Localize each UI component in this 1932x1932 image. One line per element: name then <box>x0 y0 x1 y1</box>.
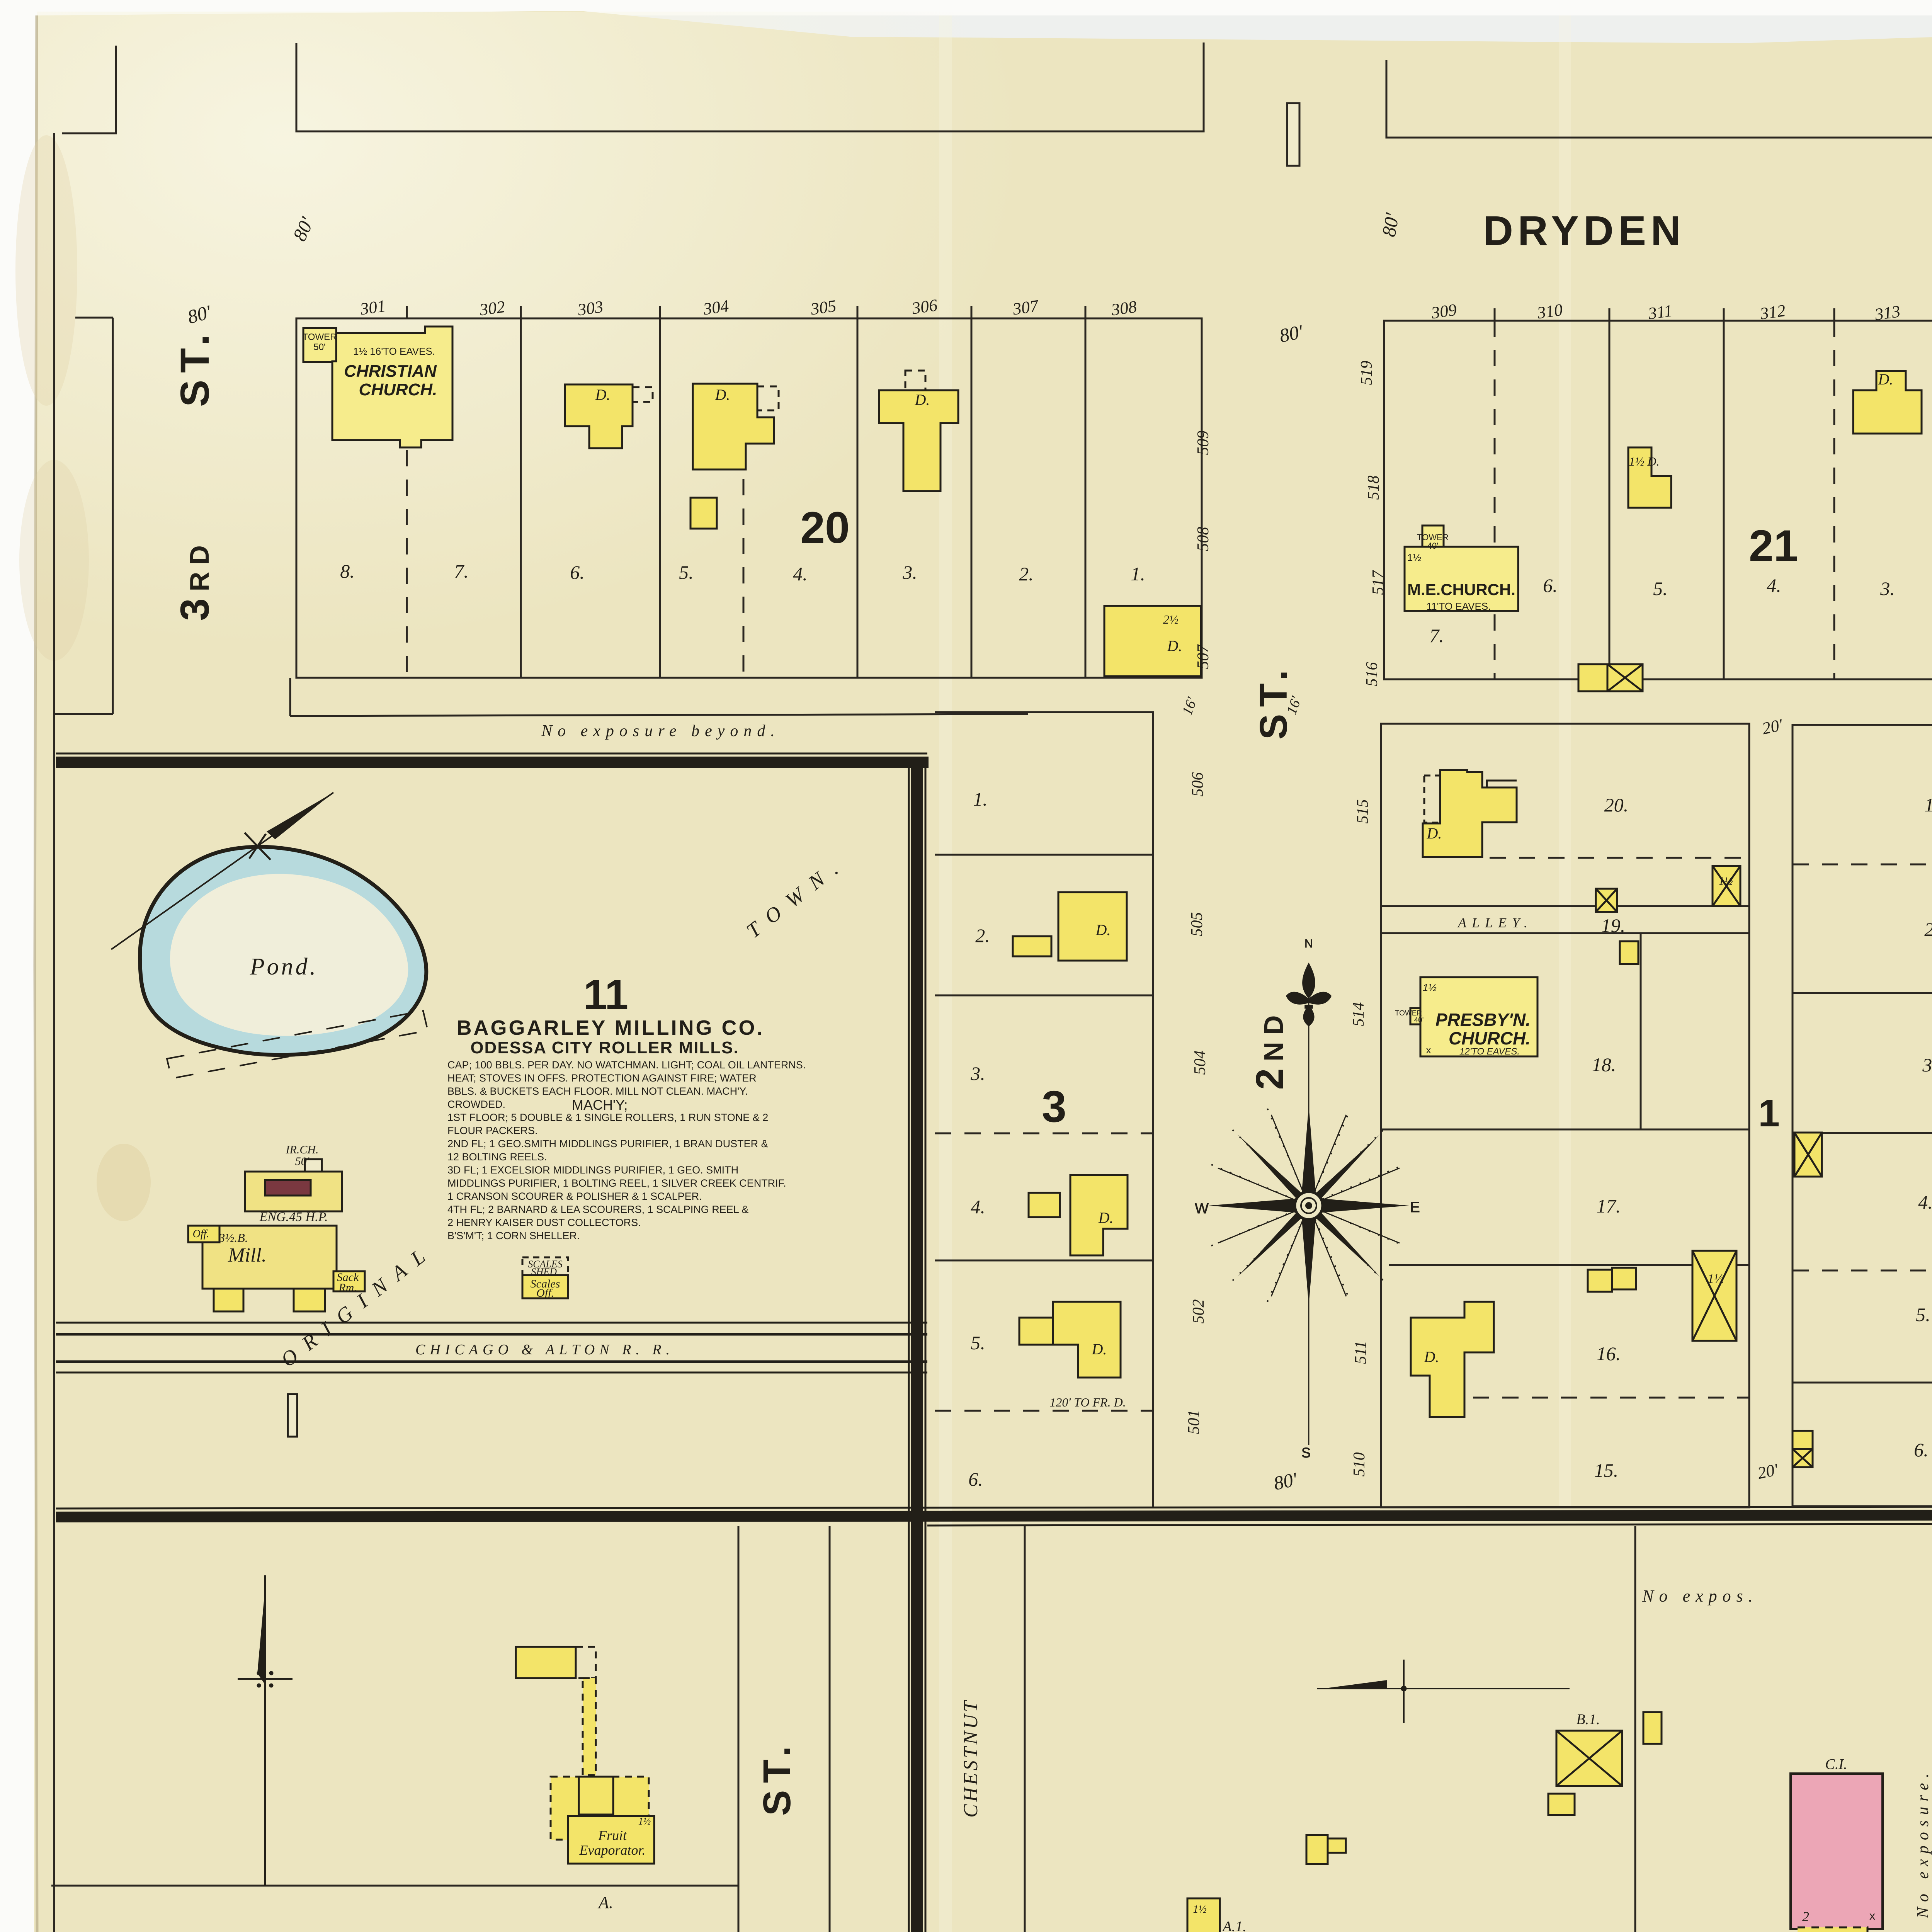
svg-text:2 HENRY KAISER DUST COLLECTORS: 2 HENRY KAISER DUST COLLECTORS. <box>447 1217 641 1228</box>
svg-text:CAP; 100 BBLS. PER DAY. NO WAT: CAP; 100 BBLS. PER DAY. NO WATCHMAN. LIG… <box>447 1059 806 1071</box>
svg-text:40': 40' <box>1427 541 1439 551</box>
svg-text:B.1.: B.1. <box>1576 1711 1600 1728</box>
svg-text:506: 506 <box>1189 772 1207 797</box>
svg-text:11'TO EAVES.: 11'TO EAVES. <box>1427 600 1491 612</box>
svg-text:ODESSA CITY ROLLER MILLS.: ODESSA CITY ROLLER MILLS. <box>470 1038 739 1057</box>
svg-text:CHICAGO & ALTON R. R.: CHICAGO & ALTON R. R. <box>415 1342 674 1358</box>
svg-text:12 BOLTING REELS.: 12 BOLTING REELS. <box>447 1151 547 1163</box>
svg-text:17.: 17. <box>1597 1195 1621 1217</box>
svg-text:312: 312 <box>1759 301 1787 323</box>
svg-text:2ND FL; 1 GEO.SMITH MIDDLINGS: 2ND FL; 1 GEO.SMITH MIDDLINGS PURIFIER, … <box>447 1138 768 1150</box>
svg-text:CHESTNUT: CHESTNUT <box>960 1699 982 1818</box>
svg-text:304: 304 <box>702 296 730 319</box>
svg-text:TOWER: TOWER <box>303 332 337 342</box>
svg-text:2½: 2½ <box>1163 612 1179 626</box>
svg-text:20: 20 <box>800 503 850 553</box>
svg-text:509: 509 <box>1194 431 1212 455</box>
svg-text:3D FL; 1 EXCELSIOR MIDDLINGS P: 3D FL; 1 EXCELSIOR MIDDLINGS PURIFIER, 1… <box>447 1164 738 1176</box>
svg-text:ST.: ST. <box>755 1739 799 1816</box>
svg-text:Off.: Off. <box>536 1287 554 1299</box>
svg-text:5.: 5. <box>971 1332 985 1354</box>
svg-text:D.: D. <box>1098 1209 1114 1226</box>
svg-text:2: 2 <box>1802 1909 1809 1924</box>
svg-text:FLOUR PACKERS.: FLOUR PACKERS. <box>447 1125 538 1136</box>
svg-text:1.: 1. <box>1924 794 1932 816</box>
svg-text:517: 517 <box>1369 570 1387 595</box>
svg-text:4.: 4. <box>793 563 808 585</box>
svg-text:310: 310 <box>1536 300 1564 323</box>
svg-text:1: 1 <box>1758 1092 1780 1135</box>
svg-text:M.E.CHURCH.: M.E.CHURCH. <box>1407 580 1515 599</box>
svg-text:E: E <box>1410 1199 1420 1216</box>
svg-text:IR.CH.: IR.CH. <box>286 1143 319 1156</box>
svg-text:x: x <box>1426 1044 1431 1056</box>
svg-text:501: 501 <box>1185 1410 1203 1434</box>
svg-text:302: 302 <box>478 297 506 320</box>
svg-text:W: W <box>1195 1201 1209 1217</box>
svg-text:3: 3 <box>1042 1082 1066 1131</box>
svg-text:120' TO FR. D.: 120' TO FR. D. <box>1049 1395 1126 1409</box>
svg-text:519: 519 <box>1358 361 1376 385</box>
svg-text:18.: 18. <box>1592 1054 1616 1075</box>
svg-text:11: 11 <box>583 971 628 1019</box>
svg-text:SHED.: SHED. <box>531 1266 560 1277</box>
svg-text:307: 307 <box>1011 296 1040 319</box>
svg-text:1½: 1½ <box>1718 875 1733 888</box>
svg-text:D.: D. <box>915 391 930 408</box>
svg-text:B'S'M'T; 1 CORN SHELLER.: B'S'M'T; 1 CORN SHELLER. <box>447 1230 580 1242</box>
svg-text:1½: 1½ <box>1708 1272 1724 1286</box>
svg-text:20.: 20. <box>1604 794 1629 816</box>
svg-text:1½: 1½ <box>1423 982 1437 993</box>
svg-text:4TH FL; 2 BARNARD & LEA SCOURE: 4TH FL; 2 BARNARD & LEA SCOURERS, 1 SCAL… <box>447 1204 748 1215</box>
svg-text:Pond.: Pond. <box>250 954 318 980</box>
svg-text:515: 515 <box>1354 799 1372 824</box>
svg-text:CHRISTIAN: CHRISTIAN <box>344 362 437 381</box>
svg-text:306: 306 <box>910 296 939 318</box>
svg-text:309: 309 <box>1430 300 1458 323</box>
svg-text:D.: D. <box>715 386 730 403</box>
svg-text:7.: 7. <box>454 560 469 582</box>
svg-text:A.1.: A.1. <box>1221 1918 1246 1932</box>
svg-text:No exposure.: No exposure. <box>1914 1768 1932 1918</box>
svg-text:C.I.: C.I. <box>1825 1756 1847 1772</box>
svg-text:311: 311 <box>1647 301 1674 323</box>
svg-text:D.: D. <box>1092 1340 1107 1358</box>
svg-text:507: 507 <box>1194 644 1212 669</box>
svg-text:303: 303 <box>576 297 604 320</box>
svg-text:505: 505 <box>1188 912 1206 937</box>
svg-text:5.: 5. <box>1653 578 1668 599</box>
svg-text:4.: 4. <box>1918 1191 1932 1213</box>
svg-text:CHURCH.: CHURCH. <box>359 380 437 399</box>
svg-text:516: 516 <box>1363 662 1381 687</box>
svg-text:DRYDEN: DRYDEN <box>1483 207 1685 254</box>
svg-text:Mill.: Mill. <box>228 1244 267 1266</box>
svg-text:19.: 19. <box>1601 915 1626 936</box>
svg-text:3.: 3. <box>902 561 917 583</box>
svg-text:510: 510 <box>1350 1452 1368 1477</box>
svg-text:50': 50' <box>313 342 325 352</box>
svg-text:518: 518 <box>1365 476 1383 500</box>
svg-text:No expos.: No expos. <box>1642 1587 1758 1605</box>
svg-text:12'TO EAVES.: 12'TO EAVES. <box>1459 1046 1520 1057</box>
svg-text:D.: D. <box>595 386 611 403</box>
svg-text:D.: D. <box>1424 1348 1439 1366</box>
svg-text:HEAT; STOVES IN OFFS. PROTECTI: HEAT; STOVES IN OFFS. PROTECTION AGAINST… <box>447 1072 757 1084</box>
svg-text:1½ D.: 1½ D. <box>1629 454 1659 468</box>
svg-text:50': 50' <box>295 1155 310 1168</box>
svg-text:502: 502 <box>1190 1299 1207 1324</box>
svg-text:2.: 2. <box>1019 563 1034 585</box>
svg-text:N: N <box>1304 937 1313 950</box>
svg-text:6.: 6. <box>1914 1439 1929 1461</box>
svg-text:1.: 1. <box>1131 563 1145 585</box>
svg-text:CHURCH.: CHURCH. <box>1449 1028 1531 1048</box>
svg-text:1½: 1½ <box>1193 1903 1207 1915</box>
svg-text:5.: 5. <box>679 561 694 583</box>
svg-text:3.: 3. <box>1922 1054 1932 1076</box>
svg-text:ENG.45 H.P.: ENG.45 H.P. <box>259 1210 328 1224</box>
svg-text:1ST FLOOR; 5 DOUBLE & 1 SINGLE: 1ST FLOOR; 5 DOUBLE & 1 SINGLE ROLLERS, … <box>447 1112 768 1123</box>
svg-text:511: 511 <box>1352 1341 1370 1364</box>
svg-text:305: 305 <box>809 296 837 319</box>
svg-text:No exposure beyond.: No exposure beyond. <box>541 722 780 740</box>
svg-text:ALLEY.: ALLEY. <box>1457 915 1533 930</box>
svg-text:3.: 3. <box>970 1063 985 1084</box>
svg-text:CROWDED.: CROWDED. <box>447 1099 505 1110</box>
svg-text:2.: 2. <box>1924 918 1932 940</box>
svg-text:308: 308 <box>1110 297 1138 320</box>
svg-text:2.: 2. <box>975 925 990 946</box>
svg-text:A.: A. <box>597 1893 613 1912</box>
svg-text:D.: D. <box>1167 637 1182 655</box>
svg-text:5.: 5. <box>1916 1304 1930 1325</box>
svg-text:80': 80' <box>1378 211 1403 238</box>
svg-text:3.: 3. <box>1880 578 1895 599</box>
svg-text:MIDDLINGS PURIFIER, 1 BOLTING: MIDDLINGS PURIFIER, 1 BOLTING REEL, 1 SI… <box>447 1177 786 1189</box>
svg-text:8.: 8. <box>340 560 355 582</box>
svg-text:3½.B.: 3½.B. <box>218 1231 248 1245</box>
svg-text:16.: 16. <box>1597 1343 1621 1364</box>
svg-text:D.: D. <box>1878 371 1893 388</box>
svg-text:301: 301 <box>359 296 387 319</box>
svg-text:4.: 4. <box>1767 575 1781 596</box>
svg-text:4.: 4. <box>971 1196 985 1218</box>
svg-text:S: S <box>1301 1445 1311 1461</box>
svg-text:Evaporator.: Evaporator. <box>579 1842 646 1858</box>
svg-text:15.: 15. <box>1594 1459 1619 1481</box>
svg-text:1.: 1. <box>973 788 988 810</box>
svg-text:313: 313 <box>1873 302 1901 324</box>
svg-text:6.: 6. <box>968 1468 983 1490</box>
svg-text:514: 514 <box>1350 1002 1367 1027</box>
svg-text:x: x <box>1869 1910 1875 1922</box>
svg-text:PRESBY'N.: PRESBY'N. <box>1435 1010 1531 1030</box>
svg-text:508: 508 <box>1194 527 1212 551</box>
svg-text:7.: 7. <box>1429 625 1444 646</box>
svg-text:D.: D. <box>1427 825 1442 842</box>
svg-text:1½ 16'TO EAVES.: 1½ 16'TO EAVES. <box>353 345 435 357</box>
svg-text:1½: 1½ <box>638 1816 651 1827</box>
svg-text:BAGGARLEY MILLING CO.: BAGGARLEY MILLING CO. <box>456 1016 764 1039</box>
svg-text:6.: 6. <box>1543 575 1558 596</box>
svg-text:Off.: Off. <box>193 1228 209 1240</box>
svg-text:40': 40' <box>1414 1016 1424 1024</box>
svg-text:MACH'Y;: MACH'Y; <box>572 1097 628 1113</box>
svg-text:21: 21 <box>1749 521 1798 571</box>
svg-text:504: 504 <box>1191 1051 1209 1075</box>
svg-text:Fruit: Fruit <box>598 1828 627 1843</box>
svg-text:ST.: ST. <box>172 327 218 407</box>
svg-text:BBLS. & BUCKETS EACH FLOOR. MI: BBLS. & BUCKETS EACH FLOOR. MILL NOT CLE… <box>447 1085 748 1097</box>
svg-text:6.: 6. <box>570 561 585 583</box>
svg-text:1½: 1½ <box>1407 552 1421 563</box>
svg-text:1 CRANSON SCOURER & POLISHER &: 1 CRANSON SCOURER & POLISHER & 1 SCALPER… <box>447 1190 702 1202</box>
svg-text:D.: D. <box>1095 921 1111 939</box>
